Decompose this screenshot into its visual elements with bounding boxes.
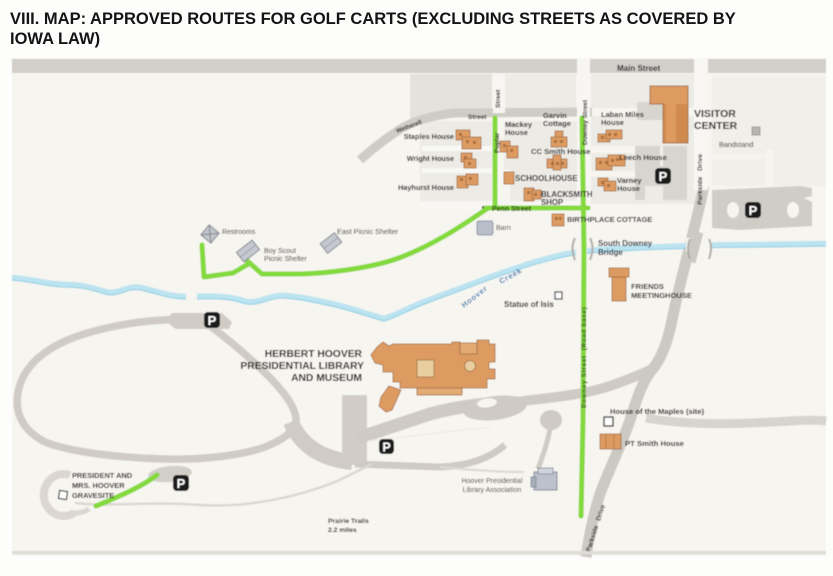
svg-text:CENTER: CENTER xyxy=(694,120,738,132)
svg-text:PRESIDENT AND: PRESIDENT AND xyxy=(72,471,133,480)
svg-text:House: House xyxy=(601,118,624,127)
svg-text:Parkside Drive: Parkside Drive xyxy=(697,154,704,205)
svg-text:House of the Maples (site): House of the Maples (site) xyxy=(610,407,705,416)
svg-text:Hayhurst House: Hayhurst House xyxy=(398,183,454,192)
svg-text:Street: Street xyxy=(495,89,502,108)
svg-text:Leech House: Leech House xyxy=(619,153,668,162)
svg-text:South Downey: South Downey xyxy=(598,239,653,248)
svg-text:House: House xyxy=(617,184,640,193)
svg-text:SHOP: SHOP xyxy=(541,198,563,207)
svg-text:P: P xyxy=(749,203,758,218)
svg-text:Penn Street: Penn Street xyxy=(492,206,532,213)
svg-text:P: P xyxy=(382,441,390,455)
svg-text:2.2 miles: 2.2 miles xyxy=(328,527,357,534)
svg-text:Barn: Barn xyxy=(496,225,511,232)
svg-text:MRS. HOOVER: MRS. HOOVER xyxy=(72,481,125,490)
svg-text:Hoover Presidential: Hoover Presidential xyxy=(461,478,523,485)
svg-text:PT Smith House: PT Smith House xyxy=(625,439,685,448)
svg-text:HERBERT HOOVER: HERBERT HOOVER xyxy=(265,349,363,360)
svg-text:GRAVESITE: GRAVESITE xyxy=(72,491,114,500)
svg-text:P: P xyxy=(659,169,668,184)
svg-text:Boy Scout: Boy Scout xyxy=(264,248,296,255)
svg-text:Picnic Shelter: Picnic Shelter xyxy=(264,256,307,263)
svg-text:Restrooms: Restrooms xyxy=(222,229,256,236)
svg-text:East Picnic Shelter: East Picnic Shelter xyxy=(337,227,399,236)
svg-text:MEETINGHOUSE: MEETINGHOUSE xyxy=(631,291,692,300)
svg-text:CC Smith House: CC Smith House xyxy=(531,147,591,156)
svg-text:Staples House: Staples House xyxy=(404,132,454,141)
svg-text:PRESIDENTIAL LIBRARY: PRESIDENTIAL LIBRARY xyxy=(240,361,364,372)
svg-text:Main Street: Main Street xyxy=(617,64,660,73)
svg-text:Downey Street: Downey Street xyxy=(582,99,589,145)
svg-text:VISITOR: VISITOR xyxy=(694,108,736,120)
svg-text:P: P xyxy=(177,476,186,491)
svg-text:FRIENDS: FRIENDS xyxy=(631,282,664,291)
svg-text:Street: Street xyxy=(468,114,487,121)
svg-text:Statue of Isis: Statue of Isis xyxy=(504,300,554,309)
svg-text:Prairie Trails: Prairie Trails xyxy=(328,518,369,525)
svg-text:BIRTHPLACE COTTAGE: BIRTHPLACE COTTAGE xyxy=(567,215,652,224)
svg-text:Library Association: Library Association xyxy=(463,487,522,494)
svg-text:Wright House: Wright House xyxy=(407,154,454,163)
svg-text:Downey Street (Road base): Downey Street (Road base) xyxy=(581,307,588,408)
svg-text:SCHOOLHOUSE: SCHOOLHOUSE xyxy=(515,174,578,183)
svg-text:Bandstand: Bandstand xyxy=(719,140,753,149)
svg-text:Poplar: Poplar xyxy=(494,132,501,153)
svg-text:Cottage: Cottage xyxy=(543,119,571,128)
svg-text:P: P xyxy=(208,313,217,328)
svg-text:AND MUSEUM: AND MUSEUM xyxy=(291,373,362,384)
svg-text:House: House xyxy=(505,128,528,137)
svg-text:Bridge: Bridge xyxy=(598,248,623,257)
